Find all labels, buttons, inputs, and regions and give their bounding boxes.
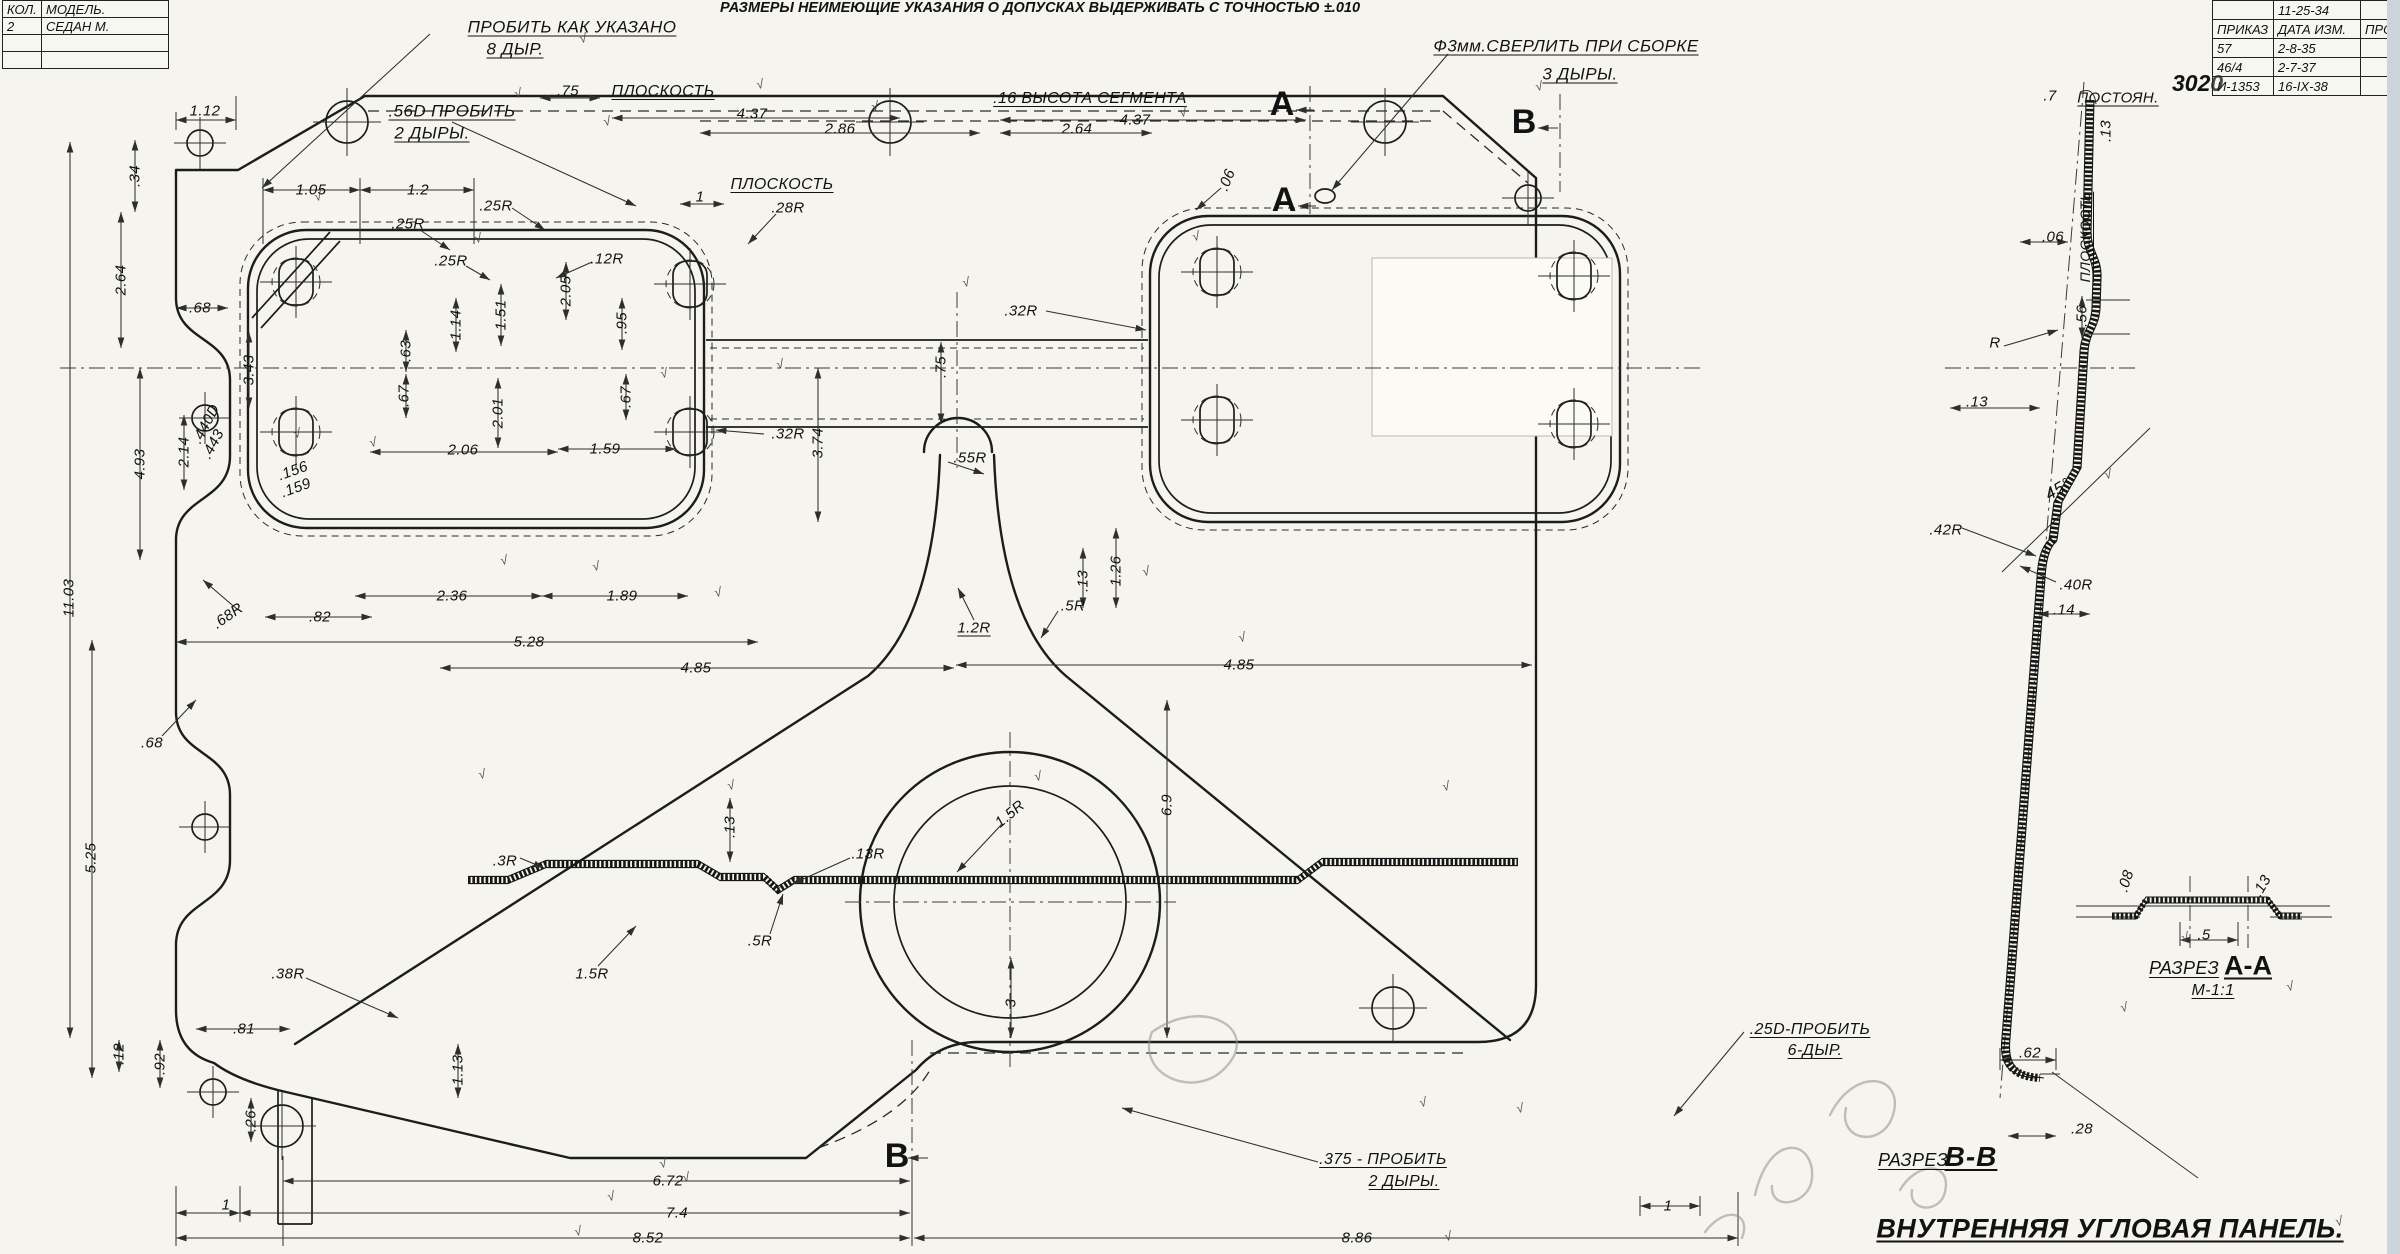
dimension-label: .82 <box>309 610 331 625</box>
dimension-label: 1.13 <box>451 1055 466 1086</box>
dimension-label: .63 <box>399 340 414 362</box>
dimension-label: 6.9 <box>1160 794 1175 816</box>
dimension-label: .32R <box>771 427 804 442</box>
dimension-label: 2.64 <box>1062 122 1093 137</box>
dimension-label: 2 ДЫРЫ. <box>394 125 469 142</box>
dimension-label: 1 <box>1664 1199 1673 1214</box>
dimension-label: R <box>1989 336 2000 351</box>
dimension-label: 2.05 <box>559 276 574 307</box>
dimension-label: 1.2 <box>407 183 429 198</box>
dimension-label: В-В <box>1945 1143 1998 1171</box>
dimension-label: 1.89 <box>607 589 638 604</box>
paper-patch <box>1372 258 1612 436</box>
table-cell: 16-IX-38 <box>2274 77 2361 95</box>
table-cell: 46/4 <box>2213 58 2274 76</box>
dimension-label: 2.86 <box>825 122 856 137</box>
dimension-label: ПЛОСКОСТЬ <box>2078 192 2092 283</box>
dimension-label: 1.12 <box>190 104 221 119</box>
model-table: КОЛ.МОДЕЛЬ.2СЕДАН М. <box>2 0 169 69</box>
section-marker: A <box>1272 183 1297 217</box>
dimension-label: .13 <box>1076 570 1091 592</box>
dimension-label: 5.25 <box>84 843 99 874</box>
dimension-label: 1.26 <box>1109 556 1124 587</box>
table-cell: КОЛ. <box>3 1 42 17</box>
dimension-label: .5R <box>748 934 773 949</box>
dimension-label: 1 <box>696 190 705 205</box>
section-marker: A <box>1270 87 1295 121</box>
dimension-label: 2.64 <box>114 265 129 296</box>
dimension-label: 1.14 <box>449 310 464 341</box>
dimension-label: 1.5R <box>575 967 608 982</box>
drawing-title: ВНУТРЕННЯЯ УГЛОВАЯ ПАНЕЛЬ. <box>1876 1216 2343 1243</box>
dimension-label: .32R <box>1004 304 1037 319</box>
table-cell <box>3 52 42 68</box>
table-cell: 11-25-34 <box>2274 1 2361 19</box>
dimension-label: 2 ДЫРЫ. <box>1369 1174 1440 1190</box>
drill-hole-3mm <box>1315 189 1335 203</box>
dimension-label: .75 <box>557 84 579 99</box>
dimension-label: РАЗРЕЗ <box>1878 1151 1948 1169</box>
dimension-label: .13 <box>1966 395 1988 410</box>
dimension-label: 7.4 <box>666 1206 688 1221</box>
dimension-label: .67 <box>619 386 634 408</box>
dimension-label: 3 <box>1004 999 1019 1008</box>
dimension-label: ПРОБИТЬ КАК УКАЗАНО <box>468 19 677 36</box>
dimension-label: 4.85 <box>681 661 712 676</box>
dimension-label: .62 <box>2019 1046 2041 1061</box>
table-cell: 2-8-35 <box>2274 39 2361 57</box>
dimension-label: 11.03 <box>62 579 77 617</box>
panel-outline <box>176 96 1536 1224</box>
dimension-label: 8.86 <box>1342 1231 1373 1246</box>
table-cell: СЕДАН М. <box>42 18 168 34</box>
dimension-label: .12 <box>112 1043 127 1065</box>
drawing-sheet: РАЗМЕРЫ НЕИМЕЮЩИЕ УКАЗАНИЯ О ДОПУСКАХ ВЫ… <box>0 0 2400 1254</box>
dimension-label: 1.05 <box>296 183 327 198</box>
dimension-label: .28 <box>2071 1122 2093 1137</box>
dimension-label: ПЛОСКОСТЬ <box>611 84 714 100</box>
table-cell: МОДЕЛЬ. <box>42 1 168 17</box>
dimension-label: 1.2R <box>957 621 990 636</box>
dimension-label: 3.74 <box>811 428 826 459</box>
table-cell: 2 <box>3 18 42 34</box>
dimension-label: .25R <box>434 254 467 269</box>
dimension-label: М-1:1 <box>2192 983 2235 999</box>
dimension-label: .81 <box>233 1022 255 1037</box>
dimension-label: .13 <box>2099 120 2114 142</box>
dimension-label: ПОСТОЯН. <box>2077 91 2158 106</box>
dimension-label: .42R <box>1929 523 1962 538</box>
dimension-label: .13 <box>723 816 738 838</box>
dimension-label: .40R <box>2059 578 2092 593</box>
dimension-label: .26 <box>244 1110 259 1132</box>
dimension-label: .55R <box>953 451 986 466</box>
table-cell: 2-7-37 <box>2274 58 2361 76</box>
dimension-label: .25R <box>391 217 424 232</box>
dimension-label: .375 - ПРОБИТЬ <box>1319 1152 1447 1168</box>
punched-holes <box>174 88 1610 1160</box>
dimension-label: .75 <box>934 356 949 378</box>
table-cell: 57 <box>2213 39 2274 57</box>
table-cell <box>42 52 168 68</box>
table-cell: И-1353 <box>2213 77 2274 95</box>
table-cell: ДАТА ИЗМ. <box>2274 20 2361 38</box>
dimension-label: .7 <box>2043 89 2056 104</box>
dimension-label: .56D ПРОБИТЬ <box>389 103 516 120</box>
dimension-label: 3.43 <box>242 355 257 386</box>
dimension-label: .92 <box>153 1053 168 1075</box>
dimension-label: .12R <box>590 252 623 267</box>
section-a-a-profile <box>2112 897 2302 919</box>
dimension-label: Ф3мм.СВЕРЛИТЬ ПРИ СБОРКЕ <box>1433 38 1698 55</box>
section-marker: А-А <box>2224 953 2272 980</box>
table-cell <box>42 35 168 51</box>
dimension-label: 4.93 <box>133 449 148 480</box>
section-marker: B <box>885 1139 910 1173</box>
drawing-linework <box>0 0 2400 1254</box>
dimension-label: .13R <box>851 847 884 862</box>
dimension-label: 8 ДЫР. <box>486 41 543 58</box>
dimension-label: 6.72 <box>653 1174 684 1189</box>
dimension-label: .06 <box>2042 230 2064 245</box>
dimension-label: 4.37 <box>1120 113 1151 128</box>
dimension-label: 3 ДЫРЫ. <box>1542 66 1617 83</box>
dimension-label: 4.37 <box>737 107 768 122</box>
dimension-label: 4.85 <box>1224 658 1255 673</box>
table-cell <box>3 35 42 51</box>
scan-edge <box>2387 0 2400 1254</box>
dimension-label: .14 <box>2053 603 2075 618</box>
dimension-label: .25R <box>479 199 512 214</box>
tolerance-note: РАЗМЕРЫ НЕИМЕЮЩИЕ УКАЗАНИЯ О ДОПУСКАХ ВЫ… <box>720 0 1360 16</box>
right-opening <box>1142 208 1628 530</box>
dimension-label: 2.14 <box>177 437 192 468</box>
center-channel <box>706 340 1148 427</box>
table-cell <box>2213 1 2274 19</box>
dimension-label: ПЛОСКОСТЬ <box>730 177 833 193</box>
dimension-label: 1 <box>222 1198 231 1213</box>
table-cell: ПРИКАЗ <box>2213 20 2274 38</box>
section-marker: B <box>1512 105 1537 139</box>
dimension-label: .25D-ПРОБИТЬ <box>1750 1022 1871 1038</box>
dimension-label: .95 <box>615 312 630 334</box>
dimension-label: .28R <box>771 201 804 216</box>
dimension-label: 1.51 <box>494 300 509 331</box>
revision-table: 11-25-34ПРИКАЗДАТА ИЗМ.ПРОВ.572-8-3546/4… <box>2212 0 2400 96</box>
dimension-label: 6-ДЫР. <box>1788 1043 1843 1059</box>
dimension-label: 2.36 <box>437 589 468 604</box>
dimension-label: 2.01 <box>491 398 506 429</box>
dimension-label: 2.06 <box>448 443 479 458</box>
dimension-label: .34 <box>128 165 143 187</box>
dimension-label: .5 <box>2197 928 2210 943</box>
centerlines <box>60 82 2248 1170</box>
dimension-label: .68 <box>141 736 163 751</box>
dimension-label: .16 ВЫСОТА СЕГМЕНТА <box>993 91 1187 107</box>
dimension-label: .56 <box>2075 305 2090 327</box>
dimension-label: 8.52 <box>633 1231 664 1246</box>
dimension-label: РАЗРЕЗ <box>2149 959 2219 977</box>
dimension-label: .5R <box>1061 599 1086 614</box>
bead-section-band <box>468 858 1518 893</box>
dimension-label: 5.28 <box>514 635 545 650</box>
dimension-label: .3R <box>493 854 518 869</box>
dimension-label: .67 <box>397 385 412 407</box>
dimension-label: .38R <box>271 967 304 982</box>
dimension-label: .68 <box>189 301 211 316</box>
dimension-label: 1.59 <box>590 442 621 457</box>
